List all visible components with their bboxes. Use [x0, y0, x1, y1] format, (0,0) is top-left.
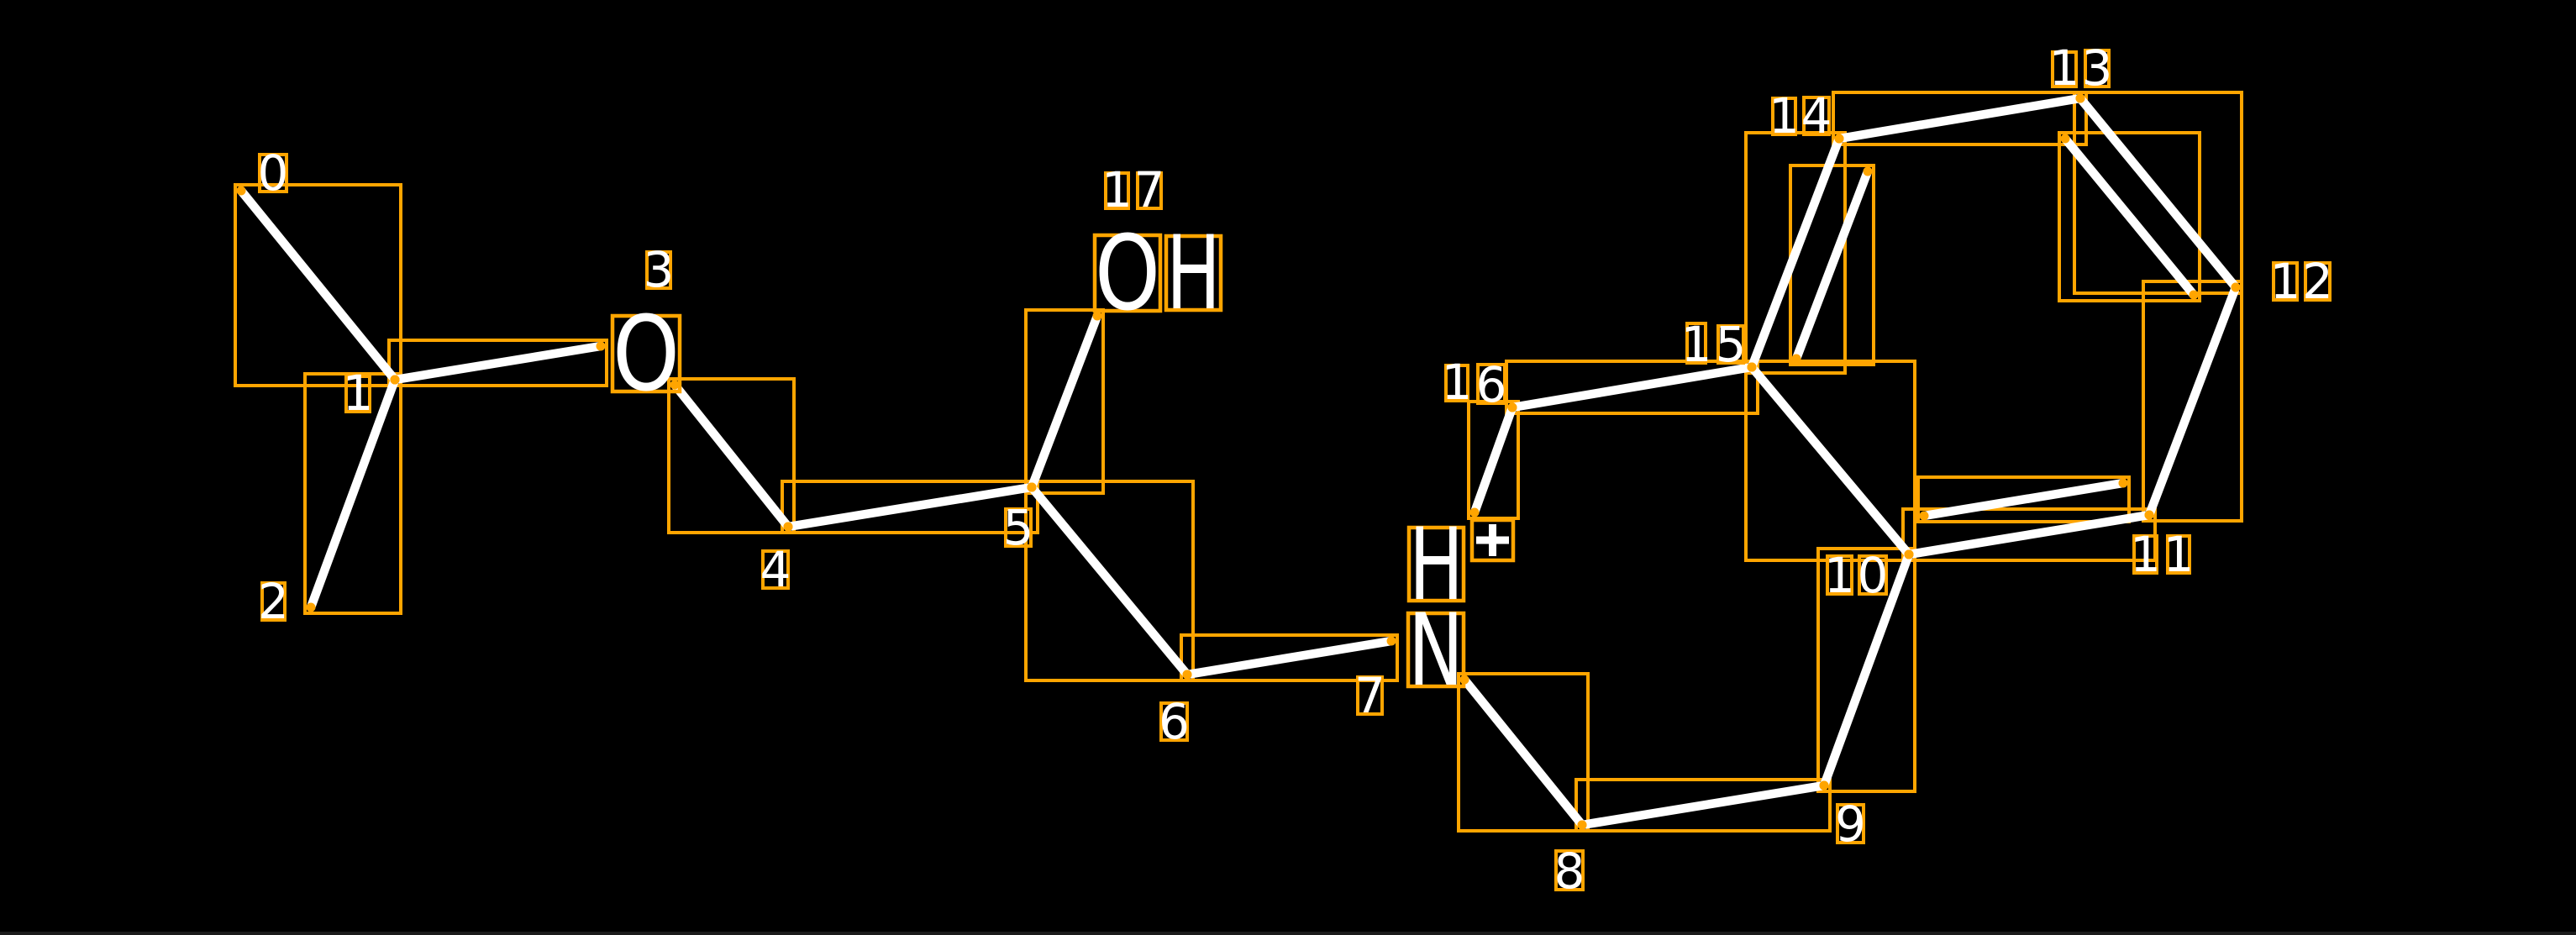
bond-endpoint-dot: [2190, 291, 2199, 300]
bond-endpoint-dot: [670, 381, 680, 390]
atom-index-label-11: 1: [2130, 526, 2161, 583]
atom-index-label-2: 2: [258, 573, 289, 630]
atom-glyph-3: O: [612, 295, 680, 415]
atom-index-label-14: 4: [1801, 87, 1832, 144]
atom-index-label-16: 6: [1476, 356, 1507, 413]
atom-index-label-9: 9: [1835, 796, 1866, 853]
atom-index-label-14: 1: [1769, 87, 1800, 144]
bond-endpoint-dot: [2119, 479, 2128, 488]
atom-index-label-12: 1: [2270, 253, 2301, 310]
atom-index-label-4: 4: [760, 541, 791, 598]
bond-endpoint-dot: [597, 342, 606, 351]
atom-index-label-5: 5: [1003, 499, 1034, 556]
atom-index-label-1: 1: [343, 365, 374, 422]
atom-index-label-13: 3: [2082, 39, 2113, 97]
atom-index-label-8: 8: [1554, 843, 1585, 900]
molecule-svg: OOHHN 01234567891011121314151617: [0, 0, 2576, 935]
bottom-edge-strip: [0, 932, 2576, 935]
bond-endpoint-dot: [1093, 312, 1102, 321]
molecule-annotation-canvas: OOHHN 01234567891011121314151617: [0, 0, 2576, 935]
bond-endpoint-dot: [1792, 355, 1801, 364]
bond-endpoint-dot: [2145, 511, 2154, 520]
bond-endpoint-dot: [1387, 637, 1396, 646]
atom-index-label-0: 0: [258, 144, 289, 202]
bond-endpoint-dot: [1820, 781, 1829, 791]
bond-endpoint-dot: [391, 376, 400, 385]
atom-index-label-12: 2: [2302, 253, 2333, 310]
bond-endpoint-dot: [1578, 821, 1587, 830]
bond-endpoint-dot: [1835, 134, 1844, 144]
bond-endpoint-dot: [1920, 512, 1929, 521]
atom-index-label-10: 0: [1858, 547, 1889, 604]
bond-endpoint-dot: [2061, 134, 2070, 144]
bond-endpoint-dot: [2232, 283, 2241, 292]
atom-index-label-3: 3: [644, 241, 675, 298]
bond-endpoint-dot: [237, 186, 246, 196]
atom-glyph-17: O: [1095, 214, 1160, 334]
atom-index-label-7: 7: [1354, 667, 1385, 724]
bond-endpoint-dot: [1864, 167, 1873, 176]
atom-index-label-15: 1: [1681, 316, 1712, 373]
atom-index-label-6: 6: [1159, 693, 1190, 750]
atom-glyph-7: N: [1408, 593, 1464, 709]
atom-index-label-16: 1: [1442, 354, 1473, 411]
atom-index-label-17: 7: [1134, 161, 1165, 218]
bond-endpoint-dot: [1905, 550, 1914, 559]
bond-endpoint-dot: [1748, 363, 1757, 372]
atom-index-label-17: 1: [1101, 161, 1133, 218]
atom-index-label-15: 5: [1716, 316, 1747, 373]
bond-endpoint-dot: [784, 523, 793, 532]
atom-index-label-10: 1: [1824, 547, 1855, 604]
bond-endpoint-dot: [1028, 483, 1037, 492]
background: [0, 0, 2576, 935]
bond-endpoint-dot: [1470, 508, 1480, 517]
bond-endpoint-dot: [307, 603, 316, 612]
atom-index-label-11: 1: [2163, 526, 2195, 583]
atom-index-label-13: 1: [2049, 39, 2080, 97]
bond-endpoint-dot: [1460, 675, 1469, 685]
bond-endpoint-dot: [1183, 670, 1192, 680]
atom-glyph-17: H: [1166, 214, 1221, 333]
bond-endpoint-dot: [1508, 403, 1517, 412]
